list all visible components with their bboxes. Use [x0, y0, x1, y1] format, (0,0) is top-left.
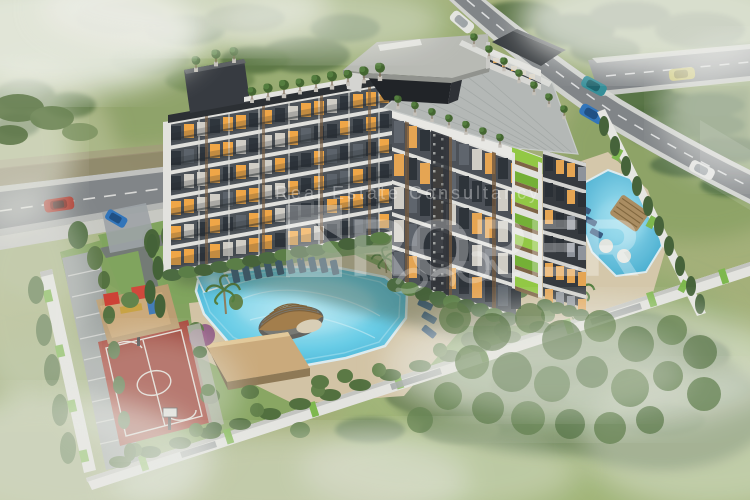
- svg-text:ROPER: ROPER: [349, 203, 641, 294]
- svg-text:Real Estate Consultancy: Real Estate Consultancy: [275, 183, 541, 203]
